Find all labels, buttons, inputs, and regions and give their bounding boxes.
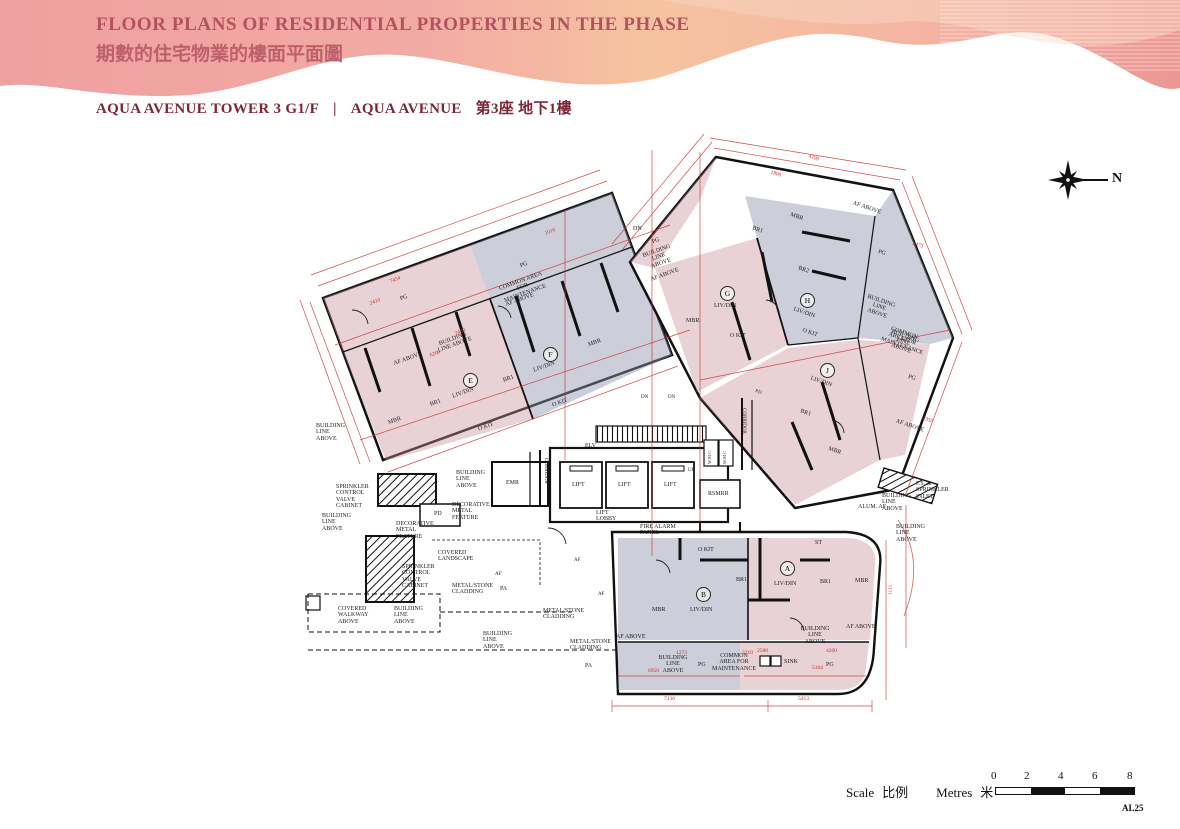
annotation-label: AF — [598, 592, 604, 597]
unit-circle: A — [780, 561, 795, 576]
room-label: EMR — [506, 480, 519, 486]
annotation-label: METAL/STONE CLADDING — [452, 583, 496, 596]
scale-tick: 2 — [1024, 770, 1030, 782]
room-label: PG — [826, 662, 834, 668]
dimension-label: 2580 — [757, 649, 768, 655]
room-label: PA — [500, 586, 507, 592]
unit-circle: B — [696, 587, 711, 602]
annotation-label: COVERED LANDSCAPE — [438, 550, 478, 563]
annotation-label: ALUM. AF — [858, 504, 886, 510]
annotation-label: BUILDING LINE ABOVE — [896, 524, 930, 543]
dimension-label: 5413 — [798, 697, 809, 703]
room-label: LIV/DIN — [714, 303, 736, 309]
left-wing — [323, 193, 672, 461]
annotation-label: BUILDING LINE ABOVE — [483, 631, 517, 650]
dimension-label: 2310 — [742, 651, 753, 657]
annotation-label: DECORATIVE METAL FEATURE — [396, 521, 438, 540]
room-label: LIFT — [618, 482, 631, 488]
unit-circle: E — [463, 373, 478, 388]
room-label: LIFT — [664, 482, 677, 488]
corridor-label: CORRIDOR — [543, 458, 548, 484]
unit-circle: H — [800, 293, 815, 308]
unit-circle: G — [720, 286, 735, 301]
annotation-label: AF ABOVE — [846, 624, 876, 630]
stair-direction-label: DN — [668, 395, 675, 400]
annotation-label: COVERED WALKWAY ABOVE — [338, 606, 376, 625]
stair-direction-label: DN — [633, 226, 642, 232]
scale-caption: Scale比例Metres米 — [846, 782, 993, 801]
metres-label-zh: 米 — [980, 785, 993, 800]
annotation-label: METAL/STONE CLADDING — [543, 608, 587, 621]
annotation-label: BUILDING LINE ABOVE — [882, 493, 916, 512]
dimension-label: 6950 — [648, 669, 659, 675]
scale-tick: 6 — [1092, 770, 1098, 782]
room-label: LIFT — [572, 482, 585, 488]
annotation-label: AF ABOVE — [616, 634, 646, 640]
annotation-label: F.S. & SPRINKLER INLET — [916, 481, 960, 500]
annotation-label: BUILDING LINE ABOVE — [322, 513, 352, 532]
room-label: LIV/DIN — [690, 607, 712, 613]
annotation-label: BUILDING LINE ABOVE — [316, 423, 348, 442]
annotation-label: SPRINKLER CONTROL VALVE CABINET — [336, 484, 378, 510]
room-label: W.M.C — [708, 451, 713, 464]
unit-circle: F — [543, 347, 558, 362]
room-label: ST — [815, 540, 822, 546]
scale-tick: 8 — [1127, 770, 1133, 782]
annotation-label: METAL/STONE CLADDING — [570, 639, 614, 652]
room-label: MBR — [686, 318, 699, 324]
room-label: BR1 — [736, 577, 747, 583]
annotation-label: AF — [495, 572, 501, 577]
scale-tick: 0 — [991, 770, 997, 782]
stair-direction-label: DN — [641, 395, 648, 400]
annotation-label: AF — [574, 558, 580, 563]
room-label: PA — [585, 663, 592, 669]
annotation-label: SPRINKLER CONTROL VALVE CABINET — [402, 564, 444, 590]
room-label: O KIT — [730, 333, 746, 339]
room-label: BR1 — [820, 579, 831, 585]
scale-label-zh: 比例 — [882, 785, 908, 800]
dimension-label: 7136 — [664, 697, 675, 703]
room-label: PD — [434, 511, 442, 517]
room-label: MBR — [855, 578, 868, 584]
annotation-label: BUILDING LINE ABOVE — [656, 655, 690, 674]
room-label: O KIT — [698, 547, 714, 553]
room-label: ELV — [585, 443, 596, 449]
room-label: LIFT LOBBY — [596, 510, 622, 523]
room-label: LIV/DIN — [774, 581, 796, 587]
metres-label-en: Metres — [936, 785, 972, 800]
dimension-label: 1111 — [889, 585, 895, 595]
annotation-label: BUILDING LINE ABOVE — [394, 606, 428, 625]
scale-label-en: Scale — [846, 785, 874, 800]
annotation-label: BUILDING LINE ABOVE — [798, 626, 832, 645]
corridor-label: CORRIDOR — [741, 408, 746, 434]
floor-plan-drawing — [0, 0, 1180, 829]
annotation-label: FIRE ALARM PANEL — [640, 524, 678, 537]
annotation-label: DECORATIVE METAL FEATURE — [452, 502, 494, 521]
dimension-label: 1273 — [676, 651, 687, 657]
brochure-page: FLOOR PLANS OF RESIDENTIAL PROPERTIES IN… — [0, 0, 1180, 829]
unit-circle: J — [820, 363, 835, 378]
fixture-label: SINK — [784, 659, 798, 665]
annotation-label: BUILDING LINE ABOVE — [456, 470, 490, 489]
room-label: W.M.C — [723, 451, 728, 464]
dimension-label: 4200 — [826, 649, 837, 655]
stair-direction-label: UP — [688, 468, 694, 473]
scale-tick: 4 — [1058, 770, 1064, 782]
scale-bar — [995, 787, 1135, 795]
page-code: AL25 — [1122, 803, 1144, 813]
dimension-label: 5164 — [812, 666, 823, 672]
room-label: MBR — [652, 607, 665, 613]
room-label: PG — [698, 662, 706, 668]
room-label: RSMRR — [708, 491, 729, 497]
